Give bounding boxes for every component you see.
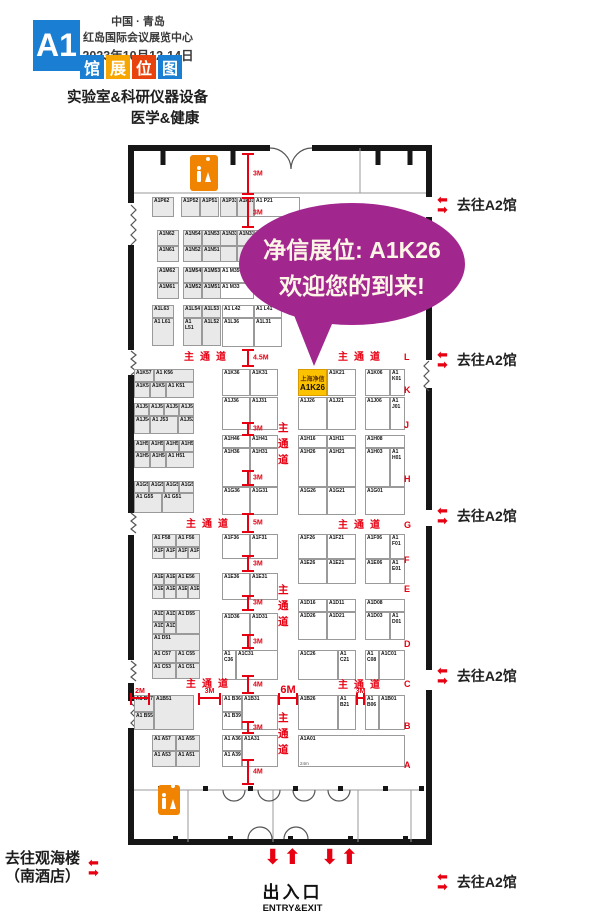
bubble-body <box>239 203 465 325</box>
booth[interactable]: A1 C53 <box>152 663 176 679</box>
restroom-icon-bottom <box>158 785 180 815</box>
booth[interactable]: A1N51 <box>202 246 221 262</box>
booth-label: A1G36 <box>223 488 249 495</box>
booth[interactable]: A1L53 <box>202 305 221 318</box>
booth[interactable]: A1G52 <box>179 481 194 493</box>
booth-label: A1D58 <box>165 611 175 618</box>
booth[interactable]: A1 A55 <box>176 735 200 751</box>
booth-label: A1D26 <box>299 613 326 620</box>
double-arrow-icon: ⬅➡ <box>88 858 99 879</box>
booth[interactable]: A1 L51 <box>183 318 202 346</box>
booth[interactable]: A1E26 <box>298 559 327 584</box>
booth-label: A1 C53 <box>153 664 175 671</box>
booth-label: A1 D55 <box>177 611 199 618</box>
booth[interactable]: A1 J01 <box>390 397 405 430</box>
booth-label: A1B31 <box>243 696 277 703</box>
booth-label: A1L53 <box>203 306 220 313</box>
booth[interactable]: A1E53 <box>164 585 176 599</box>
booth[interactable]: A1E58 <box>152 573 164 585</box>
booth[interactable]: A1K36 <box>222 369 250 396</box>
booth[interactable]: A1E06 <box>365 559 390 584</box>
row-letter-K: K <box>404 385 411 395</box>
booth[interactable]: A1 D01 <box>390 612 405 640</box>
booth-label: A1 J01 <box>391 398 404 411</box>
booth[interactable]: A1G26 <box>298 487 327 515</box>
booth[interactable]: A1M54 <box>183 267 202 283</box>
aisle-width-marker: 3M <box>247 595 249 611</box>
entry-exit-en: ENTRY&EXIT <box>230 903 355 914</box>
booth-label: A1 C55 <box>177 651 199 658</box>
booth[interactable]: A1F51 <box>188 547 200 559</box>
booth-label: A1H46 <box>223 436 249 443</box>
booth[interactable]: A1D21 <box>327 612 356 640</box>
aisle-label: 主 通 道 <box>278 583 290 630</box>
aisle-width-marker: 3M <box>247 634 249 649</box>
booth[interactable]: A1D53 <box>164 622 176 634</box>
booth[interactable]: A1 C57 <box>152 650 176 663</box>
booth[interactable]: A1J54 <box>134 416 150 434</box>
booth[interactable]: A1N33 <box>220 230 237 246</box>
aisle-label: 主通道 <box>184 348 232 363</box>
aisle-width-marker: 3M <box>247 153 249 195</box>
booth-label: A1H08 <box>366 436 404 443</box>
booth-label: A1J56 <box>165 404 178 411</box>
double-arrow-icon: ⬅➡ <box>437 666 448 687</box>
booth[interactable]: A1 A36 <box>222 735 242 751</box>
booth-label: A1F26 <box>299 535 326 542</box>
booth-label: A1E54 <box>153 586 163 593</box>
booth[interactable]: A1N53 <box>202 230 221 246</box>
booth-label: A1G57 <box>135 482 148 489</box>
booth[interactable]: A1H57 <box>149 440 164 452</box>
booth[interactable]: A1D03 <box>365 612 390 640</box>
booth-label: A1F21 <box>328 535 355 542</box>
aisle-width-marker: 3M <box>247 470 249 486</box>
booth-label: A1N33 <box>221 231 236 238</box>
booth-label: A1 A39 <box>223 752 241 759</box>
booth[interactable]: A1 B36 <box>222 695 242 712</box>
booth-label: A1M52 <box>184 284 201 291</box>
booth-label: A1H36 <box>223 449 249 456</box>
booth-label: A1L63 <box>153 306 173 313</box>
row-letter-B: B <box>404 721 411 731</box>
booth[interactable]: A1H41 <box>250 435 278 448</box>
booth[interactable]: A1J36 <box>222 397 250 430</box>
booth[interactable]: A1 K51 <box>166 382 194 398</box>
booth[interactable]: A1J56 <box>164 403 179 416</box>
booth[interactable]: A1E31 <box>250 573 278 600</box>
booth[interactable]: A1E51 <box>188 585 200 599</box>
booth[interactable]: A1 L61 <box>152 318 174 346</box>
booth-label: A1J26 <box>299 398 326 405</box>
booth[interactable]: A1D26 <box>298 612 327 640</box>
booth-label: A1N54 <box>184 231 201 238</box>
booth-label: A1D56 <box>153 623 163 630</box>
highlight-booth-id: A1K26 <box>300 383 325 392</box>
booth-label: A1H26 <box>299 449 326 456</box>
booth[interactable]: A1H56 <box>164 440 179 452</box>
booth[interactable]: A1G31 <box>250 487 278 515</box>
booth-label: A1 C36 <box>223 651 235 664</box>
title-tile: 图 <box>158 55 182 79</box>
booth-label: A1E52 <box>177 586 187 593</box>
booth[interactable]: A1L54 <box>183 305 202 318</box>
booth-label: A1G26 <box>299 488 326 495</box>
aisle-width-marker: 4M <box>247 675 249 694</box>
booth[interactable]: A1G58 <box>149 481 164 493</box>
booth[interactable]: A1 C55 <box>176 650 200 663</box>
booth[interactable]: A1 J53 <box>150 416 178 434</box>
booth[interactable]: A1K06 <box>365 369 390 396</box>
male-figure-icon <box>162 798 166 809</box>
booth[interactable]: A1 A39 <box>222 751 242 767</box>
booth-label: A1 E56 <box>177 574 199 581</box>
booth[interactable]: A1D56 <box>152 622 164 634</box>
hall-badge: A1 <box>33 20 80 71</box>
booth[interactable]: A1H11 <box>327 435 356 448</box>
aisle-width-marker: 6M <box>278 697 298 699</box>
booth[interactable]: A1K57 <box>134 369 154 382</box>
booth-label: A1J57 <box>150 404 163 411</box>
booth-label: A1J36 <box>223 398 249 405</box>
booth-label: A1M62 <box>158 268 178 275</box>
aisle-width-marker: 3M <box>198 697 221 699</box>
booth-label: A1F36 <box>223 535 249 542</box>
booth-label: A1L52 <box>203 319 220 326</box>
booth-label: A1G31 <box>251 488 277 495</box>
booth-label: A1H56 <box>165 441 178 448</box>
booth-label: A1 G51 <box>163 494 193 501</box>
booth[interactable]: A1J51 <box>179 403 194 416</box>
booth-label: A1H55 <box>180 441 193 448</box>
booth-label: A1 H51 <box>167 453 193 460</box>
booth-label: A1B51 <box>155 696 193 703</box>
booth[interactable]: A1 E01 <box>390 559 405 584</box>
booth-label: A1H58 <box>135 441 148 448</box>
booth-label: A1H57 <box>150 441 163 448</box>
booth[interactable]: A1D31 <box>250 613 278 653</box>
booth[interactable]: A1J52 <box>178 416 194 434</box>
booth[interactable]: A1M52 <box>183 283 202 299</box>
booth[interactable]: A1E54 <box>152 585 164 599</box>
booth[interactable]: A1 A53 <box>152 751 176 767</box>
booth-label: A1J21 <box>328 398 355 405</box>
booth[interactable]: A1P51 <box>200 197 219 217</box>
booth-label: A1J06 <box>366 398 389 405</box>
booth[interactable]: A1G21 <box>327 487 356 515</box>
restroom-icon <box>190 155 218 191</box>
aisle-width-marker: 3M <box>247 721 249 734</box>
double-arrow-icon: ⬅➡ <box>437 506 448 527</box>
title-tile: 位 <box>132 55 156 79</box>
booth[interactable]: A1J06 <box>365 397 390 430</box>
booth-label: A1 B36 <box>223 696 241 703</box>
booth[interactable]: A1J21 <box>327 397 356 430</box>
booth[interactable]: A1E21 <box>327 559 356 584</box>
booth[interactable]: A1H46 <box>222 435 250 448</box>
booth-label: A1 A36 <box>223 736 241 743</box>
booth[interactable]: A1B51 <box>154 695 194 730</box>
booth-label: A1 B55 <box>135 713 153 720</box>
booth-label: A1N51 <box>203 247 220 254</box>
booth[interactable]: A1H36 <box>222 448 250 487</box>
location-line2: 红岛国际会议展览中心 <box>76 29 200 45</box>
callout-bubble: 净信展位: A1K26 欢迎您的到来! <box>236 198 468 373</box>
booth[interactable]: A1L63 <box>152 305 174 318</box>
booth[interactable]: A1F54 <box>152 547 164 559</box>
booth[interactable]: A1J26 <box>298 397 327 430</box>
booth-label: A1 C21 <box>339 651 355 664</box>
booth[interactable]: A1D08 <box>365 599 405 612</box>
guanhai-sign: 去往观海楼 （南酒店） ⬅➡ <box>5 850 99 886</box>
booth-label: A1 B06 <box>366 696 378 709</box>
flyer-page: A1 中国 · 青岛 红岛国际会议展览中心 2023年10月12-14日 馆展位… <box>0 0 600 923</box>
booth[interactable]: A1N62 <box>157 230 179 246</box>
booth[interactable]: A1H21 <box>327 448 356 487</box>
row-letter-J: J <box>404 420 409 430</box>
entry-exit-sign: 出入口 ENTRY&EXIT <box>230 878 355 914</box>
booth[interactable]: A1G56 <box>164 481 179 493</box>
booth-label: A1F52 <box>177 548 187 555</box>
booth[interactable]: A1D58 <box>164 610 176 622</box>
booth[interactable]: A1K31 <box>250 369 278 396</box>
booth-label: A1N53 <box>203 231 220 238</box>
booth-label: A1B01 <box>380 696 404 703</box>
booth-label: A1P33 <box>221 198 236 205</box>
booth[interactable]: A1G36 <box>222 487 250 515</box>
booth[interactable]: A1N61 <box>157 246 179 262</box>
booth[interactable]: A1 D55 <box>176 610 200 634</box>
booth-label: A1F31 <box>251 535 277 542</box>
aisle-label: 主 通 道 <box>278 421 290 468</box>
booth[interactable]: A1 K01 <box>390 369 405 396</box>
guanhai-line2: （南酒店） <box>5 868 80 886</box>
booth-label: A1E21 <box>328 560 355 567</box>
row-letter-F: F <box>404 555 410 565</box>
booth[interactable]: A1 B39 <box>222 712 242 730</box>
booth-label: A1 C57 <box>153 651 175 658</box>
booth-label: A1G01 <box>366 488 404 495</box>
booth-label: A1H53 <box>151 453 165 460</box>
booth-label: A1P62 <box>153 198 173 205</box>
booth-label: A1G52 <box>180 482 193 489</box>
booth[interactable]: A1 F56 <box>176 534 200 547</box>
booth[interactable]: A1H16 <box>298 435 327 448</box>
row-letter-H: H <box>404 474 411 484</box>
aisle-label: 主 通 道 <box>278 711 290 758</box>
booth-label: A1 A55 <box>177 736 199 743</box>
booth-label: A1J54 <box>135 417 149 424</box>
booth[interactable]: A1C26 <box>298 650 338 680</box>
booth-label: A1D57 <box>153 611 163 618</box>
booth-label: A1 G55 <box>135 494 161 501</box>
booth[interactable]: A1E52 <box>176 585 188 599</box>
aisle-width-marker: 5M <box>247 513 249 533</box>
booth[interactable]: A1F26 <box>298 534 327 559</box>
booth-label: A1E58 <box>153 574 163 581</box>
booth-label: A1M61 <box>158 284 178 291</box>
booth-label: A1P51 <box>201 198 218 205</box>
booth[interactable]: A1M62 <box>157 267 179 283</box>
row-letter-A: A <box>404 760 411 770</box>
booth-label: A1 A53 <box>153 752 175 759</box>
booth[interactable]: A1B26 <box>298 695 338 730</box>
booth-label: A1J31 <box>251 398 277 405</box>
booth[interactable]: A1F21 <box>327 534 356 559</box>
booth[interactable]: A1H54 <box>134 452 150 468</box>
female-figure-icon <box>205 172 211 182</box>
booth-label: A1E26 <box>299 560 326 567</box>
booth[interactable]: A1H03 <box>365 448 390 487</box>
guanhai-text: 去往观海楼 （南酒店） <box>5 850 80 886</box>
booth-label: A1M51 <box>203 284 220 291</box>
booth[interactable]: A1L52 <box>202 318 221 346</box>
to-a2-sign: ⬅➡去往A2馆 <box>437 666 517 687</box>
booth-label: A1 D01 <box>391 613 404 626</box>
row-letter-E: E <box>404 584 410 594</box>
subtitle: 实验室&科研仪器设备 医学&健康 <box>35 86 240 128</box>
booth[interactable]: A1J58 <box>134 403 149 416</box>
booth[interactable]: A1G57 <box>134 481 149 493</box>
booth[interactable]: A1N52 <box>183 246 202 262</box>
booth[interactable]: A1 G55 <box>134 493 162 513</box>
booth[interactable]: A1 H01 <box>390 448 405 487</box>
booth-size: 24m <box>300 761 309 766</box>
booth-highlight-A1K26[interactable]: 上海净信A1K26 <box>298 369 327 396</box>
booth-label: A1 K51 <box>167 383 193 390</box>
booth[interactable]: A1 G51 <box>162 493 194 513</box>
booth[interactable]: A1F06 <box>365 534 390 559</box>
booth[interactable]: A1J57 <box>149 403 164 416</box>
booth[interactable]: A1D11 <box>327 599 356 612</box>
booth-label: A1A31 <box>243 736 277 743</box>
booth[interactable]: A1D16 <box>298 599 327 612</box>
booth-label: A1H31 <box>251 449 277 456</box>
to-a2-sign: ⬅➡去往A2馆 <box>437 872 517 893</box>
bubble-line1: 净信展位: A1K26 <box>263 237 441 263</box>
booth-label: A1H54 <box>135 453 149 460</box>
booth-label: A1 B39 <box>223 713 241 720</box>
booth[interactable]: A1H08 <box>365 435 405 448</box>
booth[interactable]: A1 A51 <box>176 751 200 767</box>
title-tile: 馆 <box>80 55 104 79</box>
booth[interactable]: A1K53 <box>134 382 150 398</box>
booth-label: A1D08 <box>366 600 404 607</box>
booth[interactable]: A1 K56 <box>154 369 194 382</box>
booth[interactable]: A1E57 <box>164 573 176 585</box>
booth-label: A1 J53 <box>151 417 177 424</box>
booth-label: A1 K56 <box>155 370 193 377</box>
booth-label: A1 A51 <box>177 752 199 759</box>
booth-label: A1 H01 <box>391 449 404 462</box>
location-line1: 中国 · 青岛 <box>76 13 200 29</box>
booth[interactable]: A1D57 <box>152 610 164 622</box>
booth[interactable]: A1B01 <box>379 695 405 730</box>
booth-label: A1D53 <box>165 623 175 630</box>
booth[interactable]: A1H55 <box>179 440 194 452</box>
booth-label: A1D31 <box>251 614 277 621</box>
booth[interactable]: A1 H51 <box>166 452 194 468</box>
booth-label: A1N61 <box>158 247 178 254</box>
aisle-width-marker: 2M <box>130 697 150 699</box>
booth[interactable] <box>220 246 237 262</box>
to-a2-sign: ⬅➡去往A2馆 <box>437 506 517 527</box>
booth[interactable]: A1F53 <box>164 547 176 559</box>
booth-label: A1C31 <box>237 651 277 658</box>
booth-label: A1M53 <box>203 268 220 275</box>
title-tile: 展 <box>106 55 130 79</box>
bubble-line2: 欢迎您的到来! <box>278 273 425 299</box>
booth[interactable]: A1 A57 <box>152 735 176 751</box>
booth[interactable]: A1K52 <box>150 382 166 398</box>
entry-exit-arrows-icon: ⬇⬆ ⬇⬆ <box>252 845 372 870</box>
booth[interactable]: A1A0124m <box>298 735 405 767</box>
booth-label: A1N62 <box>158 231 178 238</box>
booth[interactable]: A1P52 <box>181 197 200 217</box>
booth-label: A1H03 <box>366 449 389 456</box>
booth-label: A1E53 <box>165 586 175 593</box>
booth-label: A1E36 <box>223 574 249 581</box>
booth[interactable]: A1M61 <box>157 283 179 299</box>
guanhai-line1: 去往观海楼 <box>5 850 80 868</box>
booth-label: A1 C51 <box>177 664 199 671</box>
booth[interactable]: A1 B21 <box>338 695 356 730</box>
subtitle-line2: 医学&健康 <box>35 107 240 128</box>
booth-label: A1 C08 <box>366 651 378 664</box>
booth[interactable]: A1F52 <box>176 547 188 559</box>
booth[interactable]: A1M53 <box>202 267 221 283</box>
aisle-width-marker: 3M <box>247 555 249 572</box>
booth[interactable]: A1 F58 <box>152 534 176 547</box>
booth[interactable]: A1F31 <box>250 534 278 559</box>
booth-label: A1 B21 <box>339 696 355 709</box>
booth-label: A1J52 <box>179 417 193 424</box>
booth[interactable]: A1P33 <box>220 197 237 217</box>
booth-label: A1K52 <box>151 383 165 390</box>
booth[interactable]: A1 B06 <box>365 695 379 730</box>
booth-label: A1E57 <box>165 574 175 581</box>
booth[interactable]: A1N54 <box>183 230 202 246</box>
booth[interactable]: A1 B55 <box>134 712 154 730</box>
title-tiles: 馆展位图 <box>80 55 182 79</box>
booth[interactable]: A1G01 <box>365 487 405 515</box>
booth-label: A1 F56 <box>177 535 199 542</box>
booth-label: A1 F01 <box>391 535 404 548</box>
booth[interactable]: A1H26 <box>298 448 327 487</box>
booth-label: A1 F58 <box>153 535 175 542</box>
to-a2-text: 去往A2馆 <box>457 666 517 686</box>
booth[interactable]: A1M51 <box>202 283 221 299</box>
booth[interactable]: A1 F01 <box>390 534 405 559</box>
entry-exit-cn: 出入口 <box>230 878 355 903</box>
booth[interactable]: A1H58 <box>134 440 149 452</box>
booth-label: A1M54 <box>184 268 201 275</box>
row-letter-C: C <box>404 679 411 689</box>
booth-label: A1D16 <box>299 600 326 607</box>
to-a2-text: 去往A2馆 <box>457 872 517 892</box>
booth[interactable]: A1H53 <box>150 452 166 468</box>
booth[interactable]: A1 E56 <box>176 573 200 585</box>
booth-label: A1D21 <box>328 613 355 620</box>
booth-label: A1H11 <box>328 436 355 443</box>
booth-label: A1K53 <box>135 383 149 390</box>
booth-label: A1L54 <box>184 306 201 313</box>
highlight-company: 上海净信 <box>300 374 324 383</box>
booth[interactable]: A1P62 <box>152 197 174 217</box>
booth-label: A1A01 <box>299 736 404 743</box>
booth[interactable]: A1K21 <box>327 369 356 396</box>
subtitle-line1: 实验室&科研仪器设备 <box>35 86 240 107</box>
